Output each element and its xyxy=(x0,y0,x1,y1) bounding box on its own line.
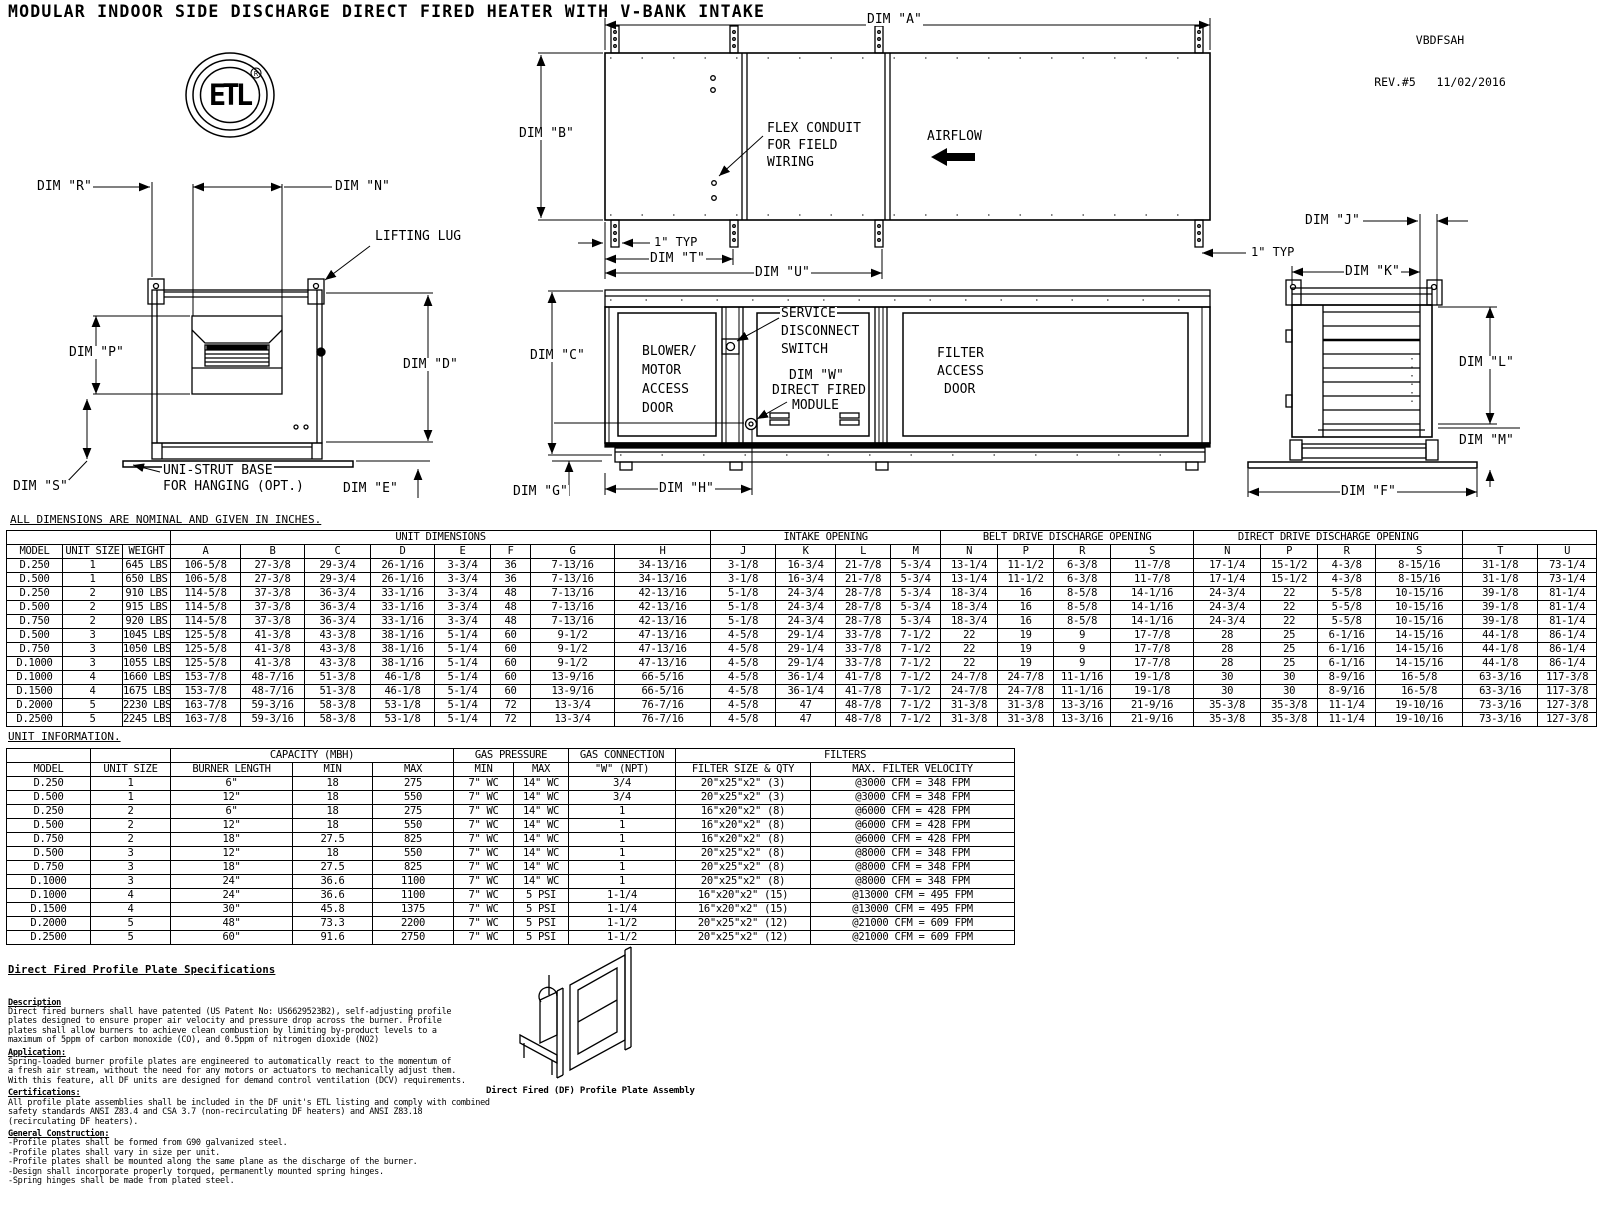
table-cell: 16 xyxy=(998,601,1054,615)
table-cell: 125-5/8 xyxy=(171,629,241,643)
table-cell: 16-5/8 xyxy=(1376,685,1463,699)
table-cell: 7-13/16 xyxy=(531,615,615,629)
callout-service-disconnect-line1: SERVICE xyxy=(780,307,837,320)
filter-door-label-line2: ACCESS xyxy=(936,365,985,378)
unit-information-table-grid: CAPACITY (MBH)GAS PRESSUREGAS CONNECTION… xyxy=(6,748,1015,945)
table-cell: 24-3/4 xyxy=(776,615,836,629)
table-cell: D.1500 xyxy=(7,903,91,917)
table-cell: 4 xyxy=(63,671,123,685)
spec-section-line: With this feature, all DF units are desi… xyxy=(8,1077,508,1086)
table-cell: 5-1/8 xyxy=(711,587,776,601)
table-cell: 16 xyxy=(998,615,1054,629)
table-cell: 43-3/8 xyxy=(305,657,371,671)
table-cell: 18-3/4 xyxy=(941,615,998,629)
table-cell: D.2000 xyxy=(7,699,63,713)
table-cell: 18" xyxy=(171,833,293,847)
table-cell: 4-3/8 xyxy=(1318,559,1376,573)
table-cell: 4-5/8 xyxy=(711,685,776,699)
table-cell: 24" xyxy=(171,889,293,903)
table-cell: 7-1/2 xyxy=(891,671,941,685)
table-cell: 5-3/4 xyxy=(891,601,941,615)
table-cell: 3-3/4 xyxy=(435,573,491,587)
table-cell: 31-3/8 xyxy=(998,713,1054,727)
table-cell: 106-5/8 xyxy=(171,559,241,573)
table-cell: 2 xyxy=(63,587,123,601)
dim-label-l: DIM "L" xyxy=(1458,356,1515,369)
table-group-header: UNIT DIMENSIONS xyxy=(171,531,711,545)
table-cell: 19 xyxy=(998,629,1054,643)
table-row: D.50031045 LBS125-5/841-3/843-3/838-1/16… xyxy=(7,629,1597,643)
table-cell: 41-3/8 xyxy=(241,629,305,643)
table-row: D.500312"185507" WC14" WC120"x25"x2" (8)… xyxy=(7,847,1015,861)
table-column-header: N xyxy=(941,545,998,559)
table-cell: 25 xyxy=(1261,643,1318,657)
table-cell: @8000 CFM = 348 FPM xyxy=(811,847,1015,861)
table-cell: 8-15/16 xyxy=(1376,573,1463,587)
table-cell: D.750 xyxy=(7,615,63,629)
table-cell: 1045 LBS xyxy=(123,629,171,643)
table-cell: 30 xyxy=(1194,685,1261,699)
table-cell: 28 xyxy=(1194,657,1261,671)
table-cell: 13-3/16 xyxy=(1054,713,1111,727)
table-cell: 63-3/16 xyxy=(1463,671,1538,685)
table-cell: 4-5/8 xyxy=(711,699,776,713)
table-cell: 12" xyxy=(171,819,293,833)
table-cell: 73-3/16 xyxy=(1463,713,1538,727)
table-cell: 8-5/8 xyxy=(1054,601,1111,615)
table-column-header: MODEL xyxy=(7,545,63,559)
table-cell: 5-3/4 xyxy=(891,615,941,629)
spec-section-line: maximum of 5ppm of carbon monoxide (CO),… xyxy=(8,1036,508,1045)
table-column-header: K xyxy=(776,545,836,559)
table-cell: 1675 LBS xyxy=(123,685,171,699)
table-cell: 5-3/4 xyxy=(891,559,941,573)
table-cell: 24" xyxy=(171,875,293,889)
table-cell: 5-5/8 xyxy=(1318,601,1376,615)
table-cell: 43-3/8 xyxy=(305,629,371,643)
spec-section: General Construction:-Profile plates sha… xyxy=(8,1130,508,1186)
table-cell: D.2500 xyxy=(7,713,63,727)
mounting-brackets-bottom xyxy=(611,220,1203,247)
table-cell: D.250 xyxy=(7,777,91,791)
table-group-header: DIRECT DRIVE DISCHARGE OPENING xyxy=(1194,531,1463,545)
table-cell: 920 LBS xyxy=(123,615,171,629)
table-cell: 114-5/8 xyxy=(171,615,241,629)
table-cell: 66-5/16 xyxy=(615,685,711,699)
table-cell: 41-7/8 xyxy=(836,685,891,699)
table-cell: 3/4 xyxy=(569,791,676,805)
table-cell: 1 xyxy=(569,805,676,819)
table-cell: 18 xyxy=(293,847,373,861)
table-cell: @8000 CFM = 348 FPM xyxy=(811,875,1015,889)
table-cell: 7" WC xyxy=(454,917,514,931)
table-group-header: GAS PRESSURE xyxy=(454,749,569,763)
airflow-arrow xyxy=(931,148,975,166)
table-cell: 915 LBS xyxy=(123,601,171,615)
table-cell: 47-13/16 xyxy=(615,643,711,657)
table-cell: 21-9/16 xyxy=(1111,713,1194,727)
table-row: D.250052245 LBS163-7/859-3/1658-3/853-1/… xyxy=(7,713,1597,727)
table-cell: 29-3/4 xyxy=(305,559,371,573)
table-cell: 910 LBS xyxy=(123,587,171,601)
table-cell: 14-15/16 xyxy=(1376,657,1463,671)
table-cell: 44-1/8 xyxy=(1463,629,1538,643)
table-column-header: P xyxy=(998,545,1054,559)
table-cell: 28 xyxy=(1194,629,1261,643)
dim-label-s: DIM "S" xyxy=(12,480,69,493)
table-cell: 2200 xyxy=(373,917,454,931)
table-cell: 1-1/2 xyxy=(569,917,676,931)
table-cell: 7" WC xyxy=(454,903,514,917)
table-cell: 21-7/8 xyxy=(836,573,891,587)
airflow-label: AIRFLOW xyxy=(926,130,983,143)
table-cell: 16-5/8 xyxy=(1376,671,1463,685)
table-cell: 14-15/16 xyxy=(1376,643,1463,657)
table-cell: 37-3/8 xyxy=(241,587,305,601)
table-cell: 19-1/8 xyxy=(1111,671,1194,685)
table-cell: 163-7/8 xyxy=(171,713,241,727)
table-cell: 1660 LBS xyxy=(123,671,171,685)
table-cell: 20"x25"x2" (3) xyxy=(676,791,811,805)
table-cell: 76-7/16 xyxy=(615,713,711,727)
table-cell: 3-1/8 xyxy=(711,573,776,587)
table-cell: 21-9/16 xyxy=(1111,699,1194,713)
table-row: D.200052230 LBS163-7/859-3/1658-3/853-1/… xyxy=(7,699,1597,713)
table-cell: 29-1/4 xyxy=(776,629,836,643)
table-cell: 163-7/8 xyxy=(171,699,241,713)
table-row: D.25016"182757" WC14" WC3/420"x25"x2" (3… xyxy=(7,777,1015,791)
table-cell: 18 xyxy=(293,777,373,791)
table-cell: 33-1/16 xyxy=(371,601,435,615)
dim-label-t: DIM "T" xyxy=(649,252,706,265)
table-cell: 7-1/2 xyxy=(891,657,941,671)
table-cell: 20"x25"x2" (8) xyxy=(676,875,811,889)
table-cell: 81-1/4 xyxy=(1538,615,1597,629)
table-cell: 16-3/4 xyxy=(776,559,836,573)
table-row: D.750218"27.58257" WC14" WC116"x20"x2" (… xyxy=(7,833,1015,847)
table-cell: 153-7/8 xyxy=(171,671,241,685)
table-cell: 16"x20"x2" (8) xyxy=(676,819,811,833)
table-cell: 13-9/16 xyxy=(531,671,615,685)
table-cell: 33-7/8 xyxy=(836,657,891,671)
table-cell: 7-13/16 xyxy=(531,559,615,573)
table-cell: 117-3/8 xyxy=(1538,685,1597,699)
table-cell: 9-1/2 xyxy=(531,629,615,643)
table-cell: 35-3/8 xyxy=(1261,699,1318,713)
table-cell: 6-3/8 xyxy=(1054,573,1111,587)
table-cell: 6-1/16 xyxy=(1318,657,1376,671)
table-cell: 6" xyxy=(171,777,293,791)
table-cell: 30 xyxy=(1261,685,1318,699)
callout-service-disconnect-line2: DISCONNECT xyxy=(780,325,860,338)
table-cell: 48-7/16 xyxy=(241,671,305,685)
table-cell: 7" WC xyxy=(454,847,514,861)
table-cell: 5 PSI xyxy=(514,917,569,931)
table-cell: 5 xyxy=(63,699,123,713)
callout-uni-strut-base-line1: UNI-STRUT BASE xyxy=(162,464,274,477)
table-group-header xyxy=(91,749,171,763)
table-cell: 73-1/4 xyxy=(1538,559,1597,573)
table-cell: D.750 xyxy=(7,643,63,657)
table-cell: 24-7/8 xyxy=(998,671,1054,685)
unit-dimensions-table-grid: UNIT DIMENSIONSINTAKE OPENINGBELT DRIVE … xyxy=(6,530,1597,727)
table-cell: 24-3/4 xyxy=(776,601,836,615)
table-cell: 47 xyxy=(776,713,836,727)
table-cell: 550 xyxy=(373,791,454,805)
table-cell: 117-3/8 xyxy=(1538,671,1597,685)
table-cell: 3 xyxy=(63,643,123,657)
table-cell: 36-1/4 xyxy=(776,685,836,699)
table-cell: 15-1/2 xyxy=(1261,559,1318,573)
table-group-header: INTAKE OPENING xyxy=(711,531,941,545)
table-cell: 20"x25"x2" (12) xyxy=(676,931,811,945)
table-cell: 39-1/8 xyxy=(1463,615,1538,629)
table-cell: 38-1/16 xyxy=(371,643,435,657)
table-cell: 30 xyxy=(1261,671,1318,685)
table-cell: D.1000 xyxy=(7,657,63,671)
specs-heading: Direct Fired Profile Plate Specification… xyxy=(8,965,508,976)
table-row: D.7502920 LBS114-5/837-3/836-3/433-1/163… xyxy=(7,615,1597,629)
table-cell: 33-1/16 xyxy=(371,587,435,601)
table-cell: 20"x25"x2" (8) xyxy=(676,861,811,875)
table-column-header: MIN xyxy=(454,763,514,777)
table-cell: 37-3/8 xyxy=(241,601,305,615)
table-cell: 8-9/16 xyxy=(1318,685,1376,699)
table-cell: 125-5/8 xyxy=(171,643,241,657)
table-cell: D.1000 xyxy=(7,671,63,685)
table-cell: 3 xyxy=(91,861,171,875)
table-cell: 3-3/4 xyxy=(435,559,491,573)
dim-label-f: DIM "F" xyxy=(1340,485,1397,498)
table-cell: 3-3/4 xyxy=(435,601,491,615)
table-column-header: E xyxy=(435,545,491,559)
table-cell: 4-5/8 xyxy=(711,629,776,643)
dim-label-k: DIM "K" xyxy=(1344,265,1401,278)
table-cell: 7-1/2 xyxy=(891,629,941,643)
table-cell: 72 xyxy=(491,699,531,713)
table-cell: 29-3/4 xyxy=(305,573,371,587)
table-cell: 38-1/16 xyxy=(371,629,435,643)
callout-service-disconnect-line3: SWITCH xyxy=(780,343,829,356)
dim-label-n: DIM "N" xyxy=(334,180,391,193)
table-cell: 5-3/4 xyxy=(891,587,941,601)
table-cell: 1 xyxy=(569,847,676,861)
table-cell: 14" WC xyxy=(514,875,569,889)
profile-plate-assembly-drawing xyxy=(510,938,660,1098)
table-cell: 9 xyxy=(1054,629,1111,643)
table-cell: 7" WC xyxy=(454,805,514,819)
table-cell: 60" xyxy=(171,931,293,945)
callout-direct-fired-module-line2: MODULE xyxy=(791,399,840,412)
table-cell: 5-5/8 xyxy=(1318,615,1376,629)
table-cell: 5-3/4 xyxy=(891,573,941,587)
table-cell: 48 xyxy=(491,587,531,601)
table-cell: 4 xyxy=(91,903,171,917)
table-cell: 60 xyxy=(491,671,531,685)
table-column-header: D xyxy=(371,545,435,559)
table-cell: D.1000 xyxy=(7,889,91,903)
table-row: D.2501645 LBS106-5/827-3/829-3/426-1/163… xyxy=(7,559,1597,573)
table-cell: 5-5/8 xyxy=(1318,587,1376,601)
table-cell: 7" WC xyxy=(454,889,514,903)
table-cell: 2 xyxy=(91,805,171,819)
table-cell: D.2000 xyxy=(7,917,91,931)
table-cell: 60 xyxy=(491,643,531,657)
table-cell: 11-1/4 xyxy=(1318,699,1376,713)
table-cell: 2 xyxy=(63,615,123,629)
table-cell: 19-10/16 xyxy=(1376,699,1463,713)
table-cell: 13-3/4 xyxy=(531,713,615,727)
table-cell: 18-3/4 xyxy=(941,587,998,601)
table-cell: @13000 CFM = 495 FPM xyxy=(811,903,1015,917)
table-cell: 4-5/8 xyxy=(711,643,776,657)
table-cell: 60 xyxy=(491,685,531,699)
table-cell: 86-1/4 xyxy=(1538,643,1597,657)
filter-door-label-line3: DOOR xyxy=(943,383,976,396)
dim-label-h: DIM "H" xyxy=(658,482,715,495)
table-cell: 1 xyxy=(91,791,171,805)
callout-lifting-lug: LIFTING LUG xyxy=(374,230,462,243)
table-group-header: CAPACITY (MBH) xyxy=(171,749,454,763)
table-cell: 5 xyxy=(91,931,171,945)
table-cell: 127-3/8 xyxy=(1538,699,1597,713)
table-column-header: G xyxy=(531,545,615,559)
plan-view-dimensions xyxy=(538,18,1210,279)
table-cell: 53-1/8 xyxy=(371,699,435,713)
table-cell: 27.5 xyxy=(293,861,373,875)
table-cell: 5-1/4 xyxy=(435,713,491,727)
table-cell: D.750 xyxy=(7,833,91,847)
table-cell: 19 xyxy=(998,657,1054,671)
drawing-sheet: MODULAR INDOOR SIDE DISCHARGE DIRECT FIR… xyxy=(0,0,1600,1138)
specifications-text: Direct Fired Profile Plate Specification… xyxy=(8,946,508,1205)
table-cell: 8-5/8 xyxy=(1054,587,1111,601)
table-cell: 5-1/4 xyxy=(435,671,491,685)
table-cell: 30 xyxy=(1194,671,1261,685)
table-cell: 4 xyxy=(63,685,123,699)
spec-section: Certifications:All profile plate assembl… xyxy=(8,1089,508,1127)
table-cell: D.250 xyxy=(7,559,63,573)
table-cell: 73-3/16 xyxy=(1463,699,1538,713)
table-cell: 114-5/8 xyxy=(171,601,241,615)
table-column-header: A xyxy=(171,545,241,559)
table-cell: 14" WC xyxy=(514,861,569,875)
table-cell: 550 xyxy=(373,847,454,861)
table-cell: 127-3/8 xyxy=(1538,713,1597,727)
table-cell: 86-1/4 xyxy=(1538,657,1597,671)
table-cell: 11-1/16 xyxy=(1054,671,1111,685)
table-cell: 22 xyxy=(1261,587,1318,601)
table-cell: 24-7/8 xyxy=(941,671,998,685)
table-column-header: BURNER LENGTH xyxy=(171,763,293,777)
table-column-header: MAX. FILTER VELOCITY xyxy=(811,763,1015,777)
table-cell: 15-1/2 xyxy=(1261,573,1318,587)
table-cell: 47-13/16 xyxy=(615,629,711,643)
table-cell: 36.6 xyxy=(293,875,373,889)
table-cell: D.750 xyxy=(7,861,91,875)
table-cell: 31-1/8 xyxy=(1463,573,1538,587)
table-column-header: UNIT SIZE xyxy=(63,545,123,559)
table-column-header: T xyxy=(1463,545,1538,559)
table-cell: 13-3/16 xyxy=(1054,699,1111,713)
table-cell: 14" WC xyxy=(514,847,569,861)
table-cell: 1100 xyxy=(373,889,454,903)
table-cell: D.1000 xyxy=(7,875,91,889)
table-cell: @21000 CFM = 609 FPM xyxy=(811,917,1015,931)
table-cell: 16"x20"x2" (8) xyxy=(676,805,811,819)
table-cell: 53-1/8 xyxy=(371,713,435,727)
dim-label-u: DIM "U" xyxy=(754,266,811,279)
table-cell: @6000 CFM = 428 FPM xyxy=(811,833,1015,847)
table-cell: 34-13/16 xyxy=(615,573,711,587)
table-cell: 17-1/4 xyxy=(1194,573,1261,587)
spec-section: Application:Spring-loaded burner profile… xyxy=(8,1049,508,1087)
typ-label-1: 1" TYP xyxy=(653,236,698,248)
table-cell: 6-1/16 xyxy=(1318,629,1376,643)
table-cell: 7-13/16 xyxy=(531,587,615,601)
table-cell: 46-1/8 xyxy=(371,671,435,685)
table-cell: 36.6 xyxy=(293,889,373,903)
table-cell: @21000 CFM = 609 FPM xyxy=(811,931,1015,945)
table-cell: 31-3/8 xyxy=(941,699,998,713)
table-cell: 1 xyxy=(569,833,676,847)
table-cell: 16-3/4 xyxy=(776,573,836,587)
table-cell: 41-3/8 xyxy=(241,643,305,657)
table-group-header: BELT DRIVE DISCHARGE OPENING xyxy=(941,531,1194,545)
table-cell: 5 PSI xyxy=(514,903,569,917)
table-cell: 5-1/4 xyxy=(435,629,491,643)
table-cell: 16 xyxy=(998,587,1054,601)
table-cell: 60 xyxy=(491,629,531,643)
table-cell: 47-13/16 xyxy=(615,657,711,671)
table-cell: 51-3/8 xyxy=(305,685,371,699)
table-column-header: R xyxy=(1054,545,1111,559)
table-cell: D.250 xyxy=(7,805,91,819)
table-column-header: U xyxy=(1538,545,1597,559)
dim-label-a: DIM "A" xyxy=(866,13,923,26)
table-cell: 76-7/16 xyxy=(615,699,711,713)
table-cell: 20"x25"x2" (12) xyxy=(676,917,811,931)
table-cell: 21-7/8 xyxy=(836,559,891,573)
table-cell: 16"x20"x2" (15) xyxy=(676,903,811,917)
table-cell: 2 xyxy=(91,819,171,833)
table-cell: 7" WC xyxy=(454,833,514,847)
dim-label-p: DIM "P" xyxy=(68,346,125,359)
table-cell: 30" xyxy=(171,903,293,917)
table-cell: 63-3/16 xyxy=(1463,685,1538,699)
table-column-header: H xyxy=(615,545,711,559)
table-cell: 16"x20"x2" (8) xyxy=(676,833,811,847)
spec-section-line: -Profile plates shall be mounted along t… xyxy=(8,1158,508,1167)
table-cell: 19-10/16 xyxy=(1376,713,1463,727)
table-cell: 9 xyxy=(1054,657,1111,671)
table-cell: 11-1/16 xyxy=(1054,685,1111,699)
table-cell: 47 xyxy=(776,699,836,713)
table-row: D.100031055 LBS125-5/841-3/843-3/838-1/1… xyxy=(7,657,1597,671)
table-cell: 4-5/8 xyxy=(711,713,776,727)
table-cell: 35-3/8 xyxy=(1194,699,1261,713)
dim-label-r: DIM "R" xyxy=(36,180,93,193)
table-cell: 9-1/2 xyxy=(531,643,615,657)
table-cell: 36 xyxy=(491,559,531,573)
table-cell: 43-3/8 xyxy=(305,643,371,657)
table-cell: 19 xyxy=(998,643,1054,657)
table-cell: 14-1/16 xyxy=(1111,587,1194,601)
table-cell: 3/4 xyxy=(569,777,676,791)
table-cell: @13000 CFM = 495 FPM xyxy=(811,889,1015,903)
table-column-header: MIN xyxy=(293,763,373,777)
table-cell: 1 xyxy=(63,573,123,587)
